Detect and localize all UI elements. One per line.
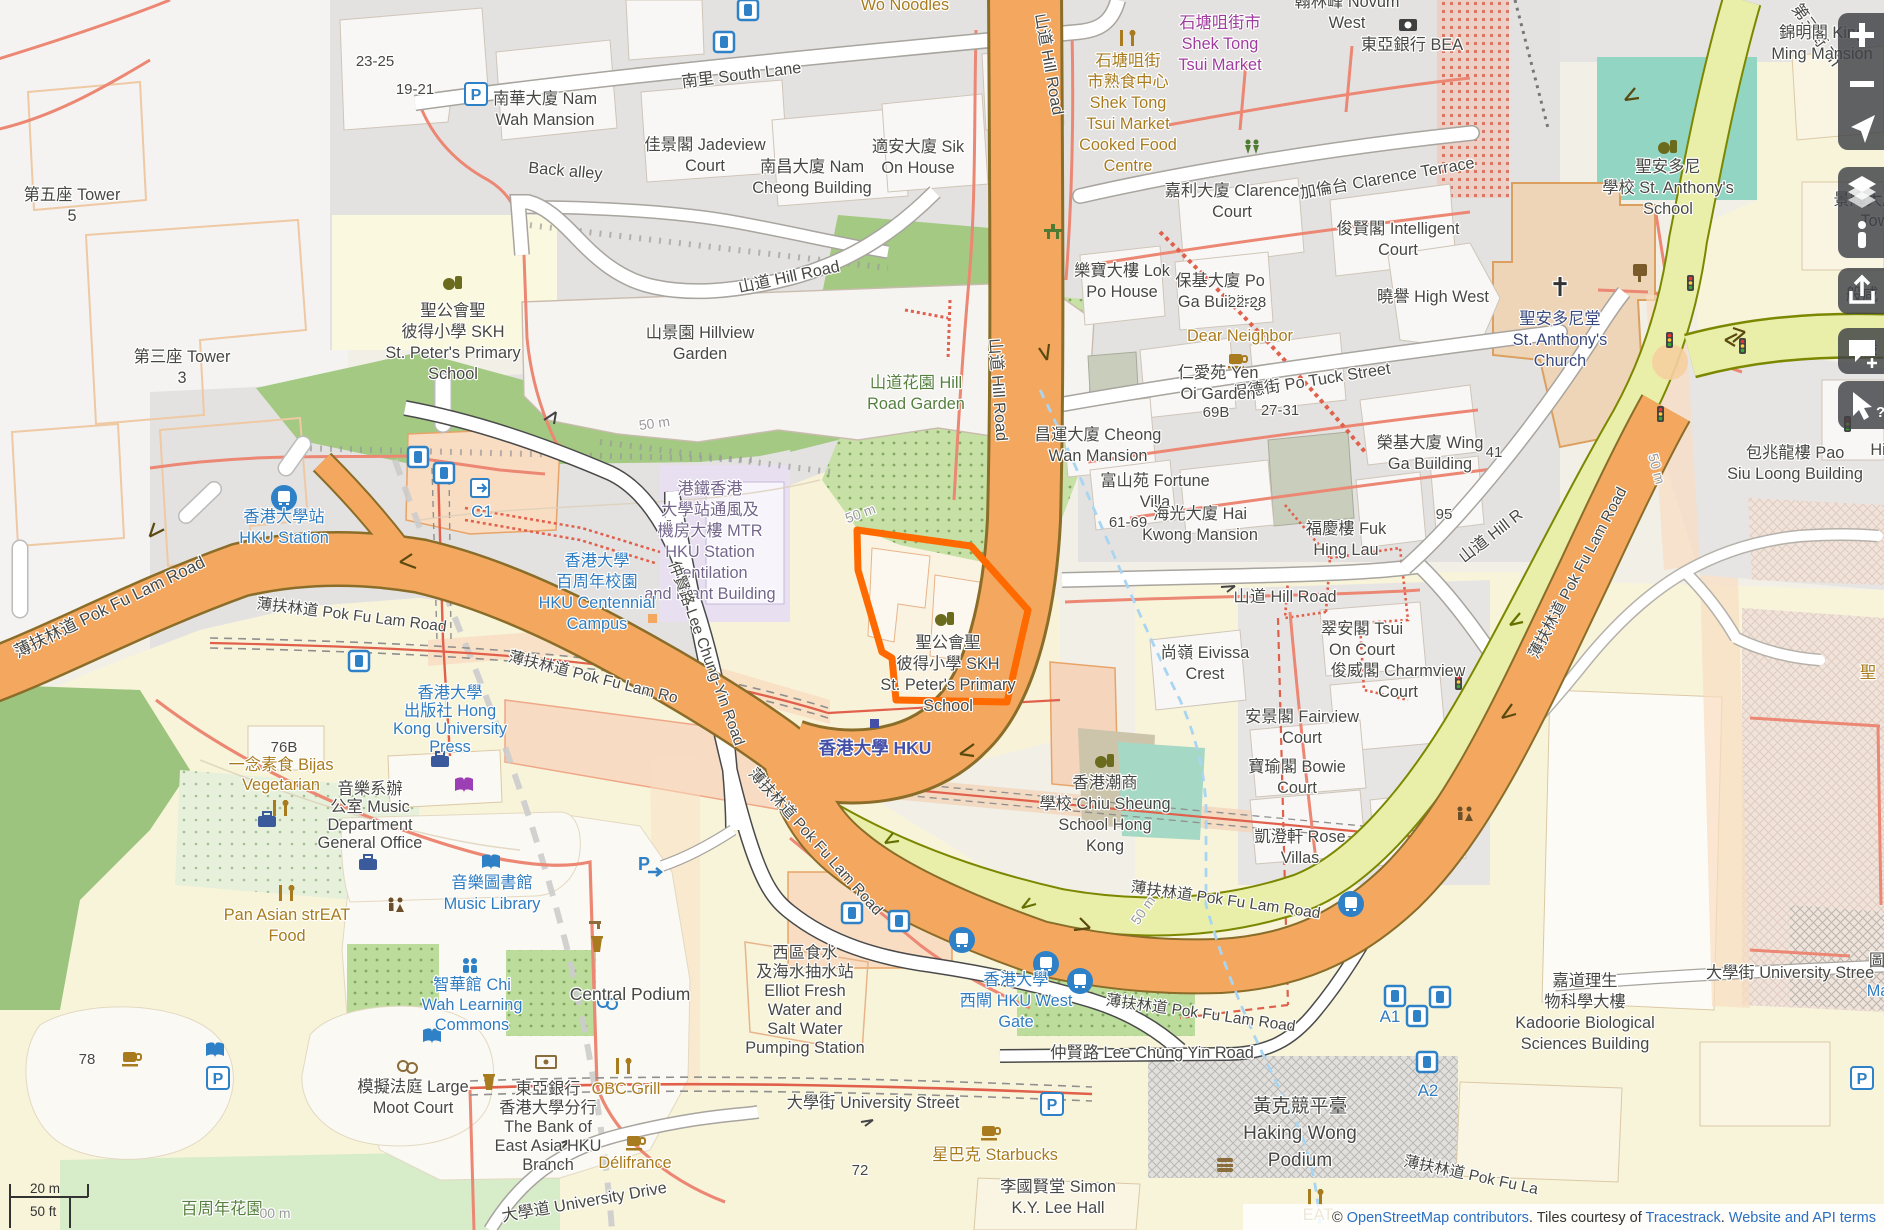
svg-text:Kwong Mansion: Kwong Mansion [1142, 526, 1258, 544]
svg-text:榮基大廈 Wing: 榮基大廈 Wing [1377, 434, 1484, 452]
svg-text:山景園 Hillview: 山景園 Hillview [646, 324, 755, 342]
svg-text:P: P [471, 87, 482, 104]
svg-text:East Asia HKU: East Asia HKU [495, 1137, 602, 1155]
svg-text:Haking Wong: Haking Wong [1243, 1123, 1357, 1144]
svg-text:港鐵香港: 港鐵香港 [677, 479, 742, 498]
svg-text:石塘咀街: 石塘咀街 [1095, 52, 1160, 70]
svg-text:寶瑜閣 Bowie: 寶瑜閣 Bowie [1248, 757, 1346, 776]
svg-text:Crest: Crest [1186, 665, 1225, 683]
svg-text:3: 3 [177, 369, 186, 387]
svg-text:Campus: Campus [567, 615, 628, 633]
svg-text:聖公會聖: 聖公會聖 [420, 302, 485, 320]
svg-text:俊威閣 Charmview: 俊威閣 Charmview [1331, 662, 1466, 680]
svg-text:南昌大廈 Nam: 南昌大廈 Nam [760, 158, 864, 176]
svg-text:佳景閣 Jadeview: 佳景閣 Jadeview [644, 136, 765, 154]
svg-text:Hing Lau: Hing Lau [1313, 541, 1378, 559]
svg-text:22-28: 22-28 [1228, 294, 1266, 311]
svg-text:Centre: Centre [1104, 157, 1153, 175]
svg-text:Po House: Po House [1086, 283, 1158, 301]
svg-text:76B: 76B [271, 739, 298, 756]
svg-text:嘉利大廈 Clarence: 嘉利大廈 Clarence [1165, 182, 1300, 200]
svg-text:昌運大廈 Cheong: 昌運大廈 Cheong [1035, 426, 1162, 444]
svg-text:Kong University: Kong University [393, 720, 508, 738]
svg-text:Hi: Hi [1870, 441, 1884, 459]
svg-text:27-31: 27-31 [1261, 402, 1299, 419]
svg-text:聖安多尼堂: 聖安多尼堂 [1519, 310, 1600, 328]
svg-text:Pumping Station: Pumping Station [745, 1039, 864, 1057]
svg-text:安景閣 Fairview: 安景閣 Fairview [1245, 708, 1359, 726]
svg-text:K.Y. Lee Hall: K.Y. Lee Hall [1012, 1199, 1105, 1217]
svg-text:23-25: 23-25 [356, 53, 394, 70]
svg-text:Vegetarian: Vegetarian [242, 776, 320, 794]
svg-text:72: 72 [852, 1162, 869, 1179]
svg-text:適安大廈 Sik: 適安大廈 Sik [872, 138, 965, 156]
svg-text:Church: Church [1534, 352, 1587, 370]
svg-text:Court: Court [685, 157, 725, 175]
svg-text:彼得小學 SKH: 彼得小學 SKH [401, 323, 504, 341]
svg-text:Cooked Food: Cooked Food [1079, 136, 1177, 154]
svg-text:百周年校園: 百周年校園 [556, 573, 637, 591]
svg-text:Garden: Garden [673, 345, 727, 363]
svg-text:The Bank of: The Bank of [504, 1118, 592, 1136]
svg-text:School: School [428, 365, 478, 383]
svg-text:大學街 University Stree: 大學街 University Stree [1706, 964, 1874, 982]
svg-text:模擬法庭 Large: 模擬法庭 Large [357, 1078, 468, 1096]
svg-text:HKU Station: HKU Station [665, 543, 755, 561]
svg-text:Gate: Gate [998, 1013, 1033, 1031]
svg-text:東亞銀行: 東亞銀行 [515, 1080, 580, 1098]
svg-text:香港大學站: 香港大學站 [243, 508, 324, 526]
svg-text:and Plant Building: and Plant Building [644, 585, 775, 603]
svg-text:大學街 University Street: 大學街 University Street [787, 1094, 960, 1112]
svg-text:Ga Building: Ga Building [1388, 455, 1472, 473]
svg-text:Shek Tong: Shek Tong [1090, 94, 1167, 112]
svg-text:On Court: On Court [1329, 641, 1396, 659]
svg-text:Wah Mansion: Wah Mansion [496, 111, 595, 129]
svg-text:St. Anthony's: St. Anthony's [1513, 331, 1608, 349]
svg-text:West: West [1329, 14, 1366, 32]
svg-text:香港大學: 香港大學 [417, 684, 482, 702]
svg-text:Press: Press [429, 738, 471, 756]
svg-text:?: ? [1876, 404, 1884, 421]
svg-text:石塘咀街市: 石塘咀街市 [1179, 14, 1260, 32]
svg-text:物科學大樓: 物科學大樓 [1544, 993, 1625, 1011]
svg-text:Villas: Villas [1281, 849, 1320, 867]
svg-text:公室 Music: 公室 Music [330, 798, 410, 816]
svg-text:尚嶺 Eivissa: 尚嶺 Eivissa [1161, 644, 1251, 662]
svg-text:Water and: Water and [768, 1001, 843, 1019]
svg-text:5: 5 [67, 207, 76, 225]
svg-text:翰林峰 Novum: 翰林峰 Novum [1295, 0, 1400, 11]
svg-text:Road Garden: Road Garden [867, 395, 965, 413]
svg-text:95: 95 [1436, 506, 1453, 523]
svg-text:大學站通風及: 大學站通風及 [661, 501, 759, 519]
svg-text:仁愛苑 Yen: 仁愛苑 Yen [1178, 364, 1259, 382]
svg-text:Central Podium: Central Podium [570, 984, 691, 1004]
svg-text:Délifrance: Délifrance [598, 1154, 671, 1172]
svg-text:Court: Court [1282, 729, 1322, 747]
svg-text:Tsui Market: Tsui Market [1178, 56, 1262, 74]
svg-text:Music Library: Music Library [444, 895, 542, 913]
svg-text:Department: Department [327, 816, 413, 834]
svg-text:Moot Court: Moot Court [373, 1099, 454, 1117]
svg-text:樂寶大樓 Lok: 樂寶大樓 Lok [1074, 261, 1171, 280]
svg-text:及海水抽水站: 及海水抽水站 [756, 963, 854, 981]
svg-text:百周年花園: 百周年花園 [181, 1200, 262, 1218]
svg-text:P: P [213, 1071, 224, 1088]
svg-text:出版社 Hong: 出版社 Hong [404, 702, 496, 720]
svg-text:A1: A1 [1380, 1007, 1401, 1026]
svg-text:P: P [1047, 1097, 1058, 1114]
svg-text:學校 Chiu Sheung: 學校 Chiu Sheung [1039, 795, 1170, 813]
svg-text:Salt Water: Salt Water [767, 1020, 843, 1038]
svg-text:Cheong Building: Cheong Building [752, 179, 872, 197]
svg-text:一念素食 Bijas: 一念素食 Bijas [229, 755, 334, 774]
svg-text:香港潮商: 香港潮商 [1072, 774, 1137, 792]
svg-text:智華館 Chi: 智華館 Chi [433, 976, 511, 994]
svg-text:凱澄軒 Rose: 凱澄軒 Rose [1254, 828, 1345, 846]
svg-text:東亞銀行 BEA: 東亞銀行 BEA [1361, 36, 1463, 54]
svg-text:Oi Garden: Oi Garden [1180, 385, 1255, 403]
svg-text:圖: 圖 [1869, 952, 1884, 970]
svg-text:Court: Court [1277, 779, 1317, 797]
svg-text:School Hong: School Hong [1058, 816, 1151, 834]
svg-text:俊賢閣 Intelligent: 俊賢閣 Intelligent [1336, 220, 1460, 238]
svg-text:Court: Court [1378, 241, 1418, 259]
svg-text:19-21: 19-21 [396, 81, 434, 98]
svg-text:西閘 HKU West: 西閘 HKU West [960, 992, 1073, 1010]
svg-text:Pan Asian strEAT: Pan Asian strEAT [224, 906, 350, 924]
svg-text:50 ft: 50 ft [30, 1204, 57, 1219]
svg-text:Wah Learning: Wah Learning [422, 996, 523, 1014]
svg-text:香港大學 HKU: 香港大學 HKU [819, 738, 932, 758]
svg-text:Elliot Fresh: Elliot Fresh [764, 982, 845, 1000]
svg-text:Dear Neighbor: Dear Neighbor [1187, 327, 1293, 345]
svg-text:第三座 Tower: 第三座 Tower [134, 348, 231, 366]
svg-text:© OpenStreetMap contributors.: © OpenStreetMap contributors. Tiles cour… [1332, 1210, 1876, 1226]
svg-text:Wo Noodles: Wo Noodles [861, 0, 949, 14]
svg-text:General Office: General Office [318, 834, 423, 852]
svg-text:School: School [1643, 200, 1693, 218]
svg-text:嘉道理生: 嘉道理生 [1552, 972, 1617, 990]
svg-text:香港大學: 香港大學 [983, 971, 1048, 989]
svg-text:OBC Grill: OBC Grill [592, 1080, 661, 1098]
svg-text:20 m: 20 m [30, 1181, 60, 1196]
svg-text:Kong: Kong [1086, 837, 1124, 855]
svg-text:西區食水: 西區食水 [772, 944, 837, 962]
svg-text:P: P [1857, 1071, 1868, 1088]
svg-text:HKU Centennial: HKU Centennial [539, 594, 656, 612]
svg-text:Ma: Ma [1867, 982, 1884, 1000]
svg-text:包兆龍樓 Pao: 包兆龍樓 Pao [1746, 444, 1845, 462]
svg-text:音樂圖書館: 音樂圖書館 [451, 874, 532, 892]
svg-text:市熟食中心: 市熟食中心 [1087, 73, 1168, 91]
svg-text:Branch: Branch [522, 1156, 574, 1174]
svg-text:Court: Court [1212, 203, 1252, 221]
svg-text:41: 41 [1486, 444, 1503, 461]
svg-text:曉譽 High West: 曉譽 High West [1377, 288, 1489, 306]
svg-text:仲賢路 Lee Chung Yin Road: 仲賢路 Lee Chung Yin Road [1050, 1044, 1254, 1062]
svg-text:St. Peter's Primary: St. Peter's Primary [385, 344, 521, 362]
svg-text:Siu Loong Building: Siu Loong Building [1727, 465, 1863, 483]
svg-text:✝: ✝ [1549, 272, 1571, 302]
svg-text:黃克競平臺: 黃克競平臺 [1252, 1095, 1347, 1117]
svg-text:富山苑 Fortune: 富山苑 Fortune [1100, 472, 1209, 490]
svg-text:聖公會聖: 聖公會聖 [915, 634, 980, 652]
svg-text:翠安閣 Tsui: 翠安閣 Tsui [1321, 620, 1403, 638]
svg-text:78: 78 [79, 1051, 96, 1068]
svg-text:A2: A2 [1418, 1081, 1439, 1100]
svg-text:Sciences Building: Sciences Building [1521, 1035, 1650, 1053]
svg-text:南華大廈 Nam: 南華大廈 Nam [493, 90, 597, 108]
svg-text:音樂系辦: 音樂系辦 [337, 780, 402, 798]
svg-text:Kadoorie Biological: Kadoorie Biological [1515, 1014, 1654, 1032]
svg-text:星巴克 Starbucks: 星巴克 Starbucks [932, 1146, 1058, 1164]
svg-text:C1: C1 [471, 502, 493, 521]
svg-text:Food: Food [268, 927, 305, 945]
svg-text:海光大廈 Hai: 海光大廈 Hai [1153, 505, 1247, 523]
svg-text:學校 St. Anthony's: 學校 St. Anthony's [1602, 179, 1734, 197]
svg-text:彼得小學 SKH: 彼得小學 SKH [896, 655, 999, 673]
svg-text:山道花園 Hill: 山道花園 Hill [870, 374, 962, 392]
svg-text:On House: On House [881, 159, 954, 177]
svg-text:School: School [923, 697, 973, 715]
svg-text:聖安多尼: 聖安多尼 [1635, 158, 1700, 176]
svg-text:第五座 Tower: 第五座 Tower [24, 186, 121, 204]
svg-text:山道 Hill Road: 山道 Hill Road [1233, 588, 1336, 606]
svg-text:Wan Mansion: Wan Mansion [1049, 447, 1148, 465]
svg-text:福慶樓 Fuk: 福慶樓 Fuk [1306, 520, 1387, 538]
svg-text:Court: Court [1378, 683, 1418, 701]
svg-text:香港大學分行: 香港大學分行 [499, 1099, 597, 1117]
svg-text:機房大樓 MTR: 機房大樓 MTR [658, 522, 763, 540]
svg-text:00 m: 00 m [259, 1205, 290, 1221]
svg-text:聖: 聖 [1860, 664, 1876, 682]
svg-text:St. Peter's Primary: St. Peter's Primary [880, 676, 1016, 694]
svg-text:Shek Tong: Shek Tong [1182, 35, 1259, 53]
svg-text:李國賢堂 Simon: 李國賢堂 Simon [1000, 1178, 1116, 1196]
svg-text:香港大學: 香港大學 [564, 552, 629, 570]
svg-text:Commons: Commons [435, 1016, 509, 1034]
svg-text:HKU Station: HKU Station [239, 529, 329, 547]
svg-text:69B: 69B [1203, 404, 1230, 421]
svg-text:Podium: Podium [1268, 1150, 1332, 1171]
svg-text:保基大廈 Po: 保基大廈 Po [1175, 272, 1265, 290]
svg-text:Tsui Market: Tsui Market [1086, 115, 1170, 133]
